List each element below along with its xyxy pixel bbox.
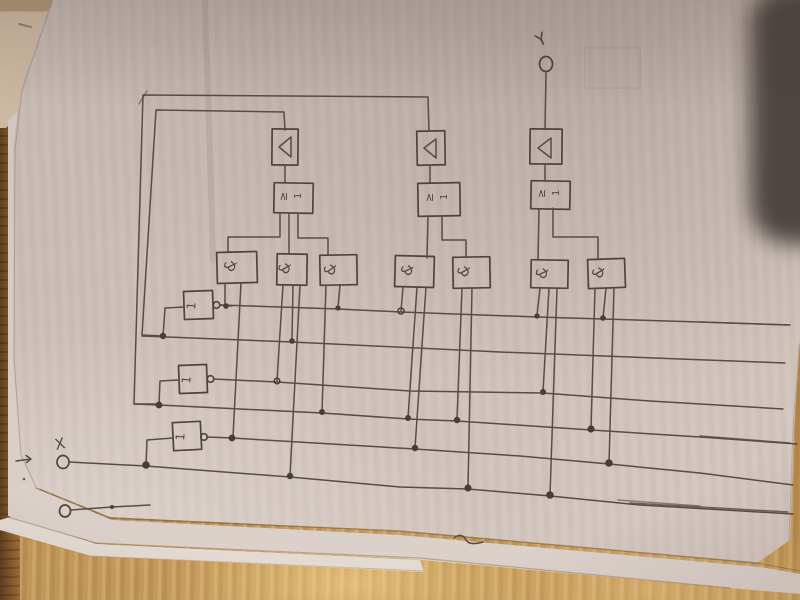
photo-scene: Y ≥ 1 ≥ bbox=[0, 0, 800, 600]
svg-text:&: & bbox=[453, 263, 473, 279]
triangle-icon bbox=[279, 137, 291, 157]
not-gate-3: 1 bbox=[146, 421, 207, 465]
output-terminal-circle bbox=[540, 57, 553, 72]
output-label-y: Y bbox=[532, 29, 552, 52]
svg-text:&: & bbox=[320, 262, 340, 277]
svg-text:1: 1 bbox=[184, 301, 199, 310]
svg-text:1: 1 bbox=[439, 194, 450, 200]
junction-dots bbox=[142, 303, 613, 499]
inverter-bubble bbox=[207, 376, 214, 383]
not-gate-2: 1 bbox=[159, 365, 214, 404]
svg-text:&: & bbox=[588, 264, 608, 279]
under-sheet-marks bbox=[16, 456, 483, 544]
inverter-bubble bbox=[213, 302, 220, 309]
bus-line-2 bbox=[142, 336, 785, 363]
svg-text:≥: ≥ bbox=[277, 192, 290, 201]
input-label-x: X bbox=[53, 434, 67, 454]
and-gate-3: & bbox=[320, 255, 358, 412]
svg-text:1: 1 bbox=[179, 375, 194, 384]
or-gate-1: ≥ 1 bbox=[228, 183, 328, 255]
svg-text:&: & bbox=[220, 257, 241, 274]
circuit-drawing: Y ≥ 1 ≥ bbox=[0, 0, 800, 600]
buffer-gate-3 bbox=[530, 129, 562, 181]
triangle-icon bbox=[424, 139, 436, 158]
feedback-wire-outer bbox=[134, 95, 429, 404]
input-terminal-x: X bbox=[53, 434, 69, 468]
svg-text:≥: ≥ bbox=[535, 189, 548, 198]
paper-edge-shadows bbox=[0, 0, 800, 588]
feedback-wires bbox=[134, 91, 429, 404]
output-terminal-y: Y bbox=[532, 29, 553, 129]
buffer-gate-1 bbox=[272, 129, 298, 183]
svg-text:&: & bbox=[397, 261, 418, 278]
bus-line-3 bbox=[214, 379, 783, 409]
svg-text:1: 1 bbox=[173, 432, 188, 441]
svg-text:1: 1 bbox=[551, 190, 562, 196]
under-sheet-terminal-circle bbox=[60, 505, 71, 517]
triangle-icon bbox=[538, 138, 551, 158]
dark-object bbox=[750, 0, 800, 244]
or-gate-2: ≥ 1 bbox=[418, 183, 466, 258]
or-gate-3: ≥ 1 bbox=[531, 181, 598, 260]
input-terminal-circle bbox=[57, 456, 69, 469]
svg-text:1: 1 bbox=[293, 193, 304, 199]
svg-text:&: & bbox=[532, 264, 553, 281]
bus-lines bbox=[69, 305, 797, 514]
buffer-gate-2 bbox=[417, 131, 446, 183]
svg-text:≥: ≥ bbox=[423, 193, 436, 202]
not-gate-1: 1 bbox=[163, 290, 232, 336]
